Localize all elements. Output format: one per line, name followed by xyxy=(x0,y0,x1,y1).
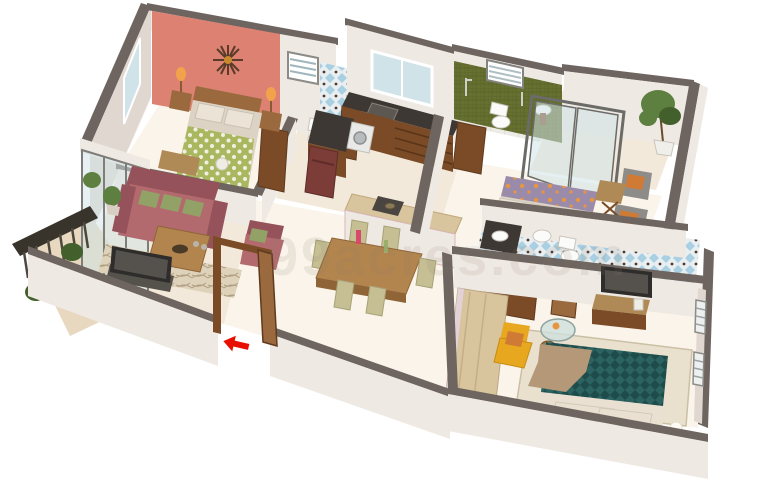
flower-pot xyxy=(553,323,560,330)
dining-chair-s2 xyxy=(366,286,386,316)
master-tv-console xyxy=(592,294,650,330)
door-post-left xyxy=(213,236,221,334)
bed1-pouf xyxy=(216,158,228,170)
entrance-arrow-icon xyxy=(222,333,251,354)
cook-pot xyxy=(385,203,395,209)
washing-machine-door xyxy=(354,132,366,144)
floorplan-scene: 99acres.com xyxy=(0,0,780,490)
bowl xyxy=(172,245,188,254)
master-east-window-1 xyxy=(695,300,706,334)
bath2-toilet-bowl xyxy=(492,116,510,128)
bedroom2-door xyxy=(453,122,486,174)
master-east-window-2 xyxy=(693,352,704,386)
bedroom1-door xyxy=(258,126,288,192)
lamp-right xyxy=(266,87,276,101)
lamp-left xyxy=(176,67,186,81)
refrigerator xyxy=(305,146,338,198)
bath1-louver-window xyxy=(288,52,318,84)
watermark: 99acres.com xyxy=(268,227,628,287)
floorplan-render: 99acres.com xyxy=(0,0,780,490)
sunburst-clock-icon xyxy=(213,45,243,75)
